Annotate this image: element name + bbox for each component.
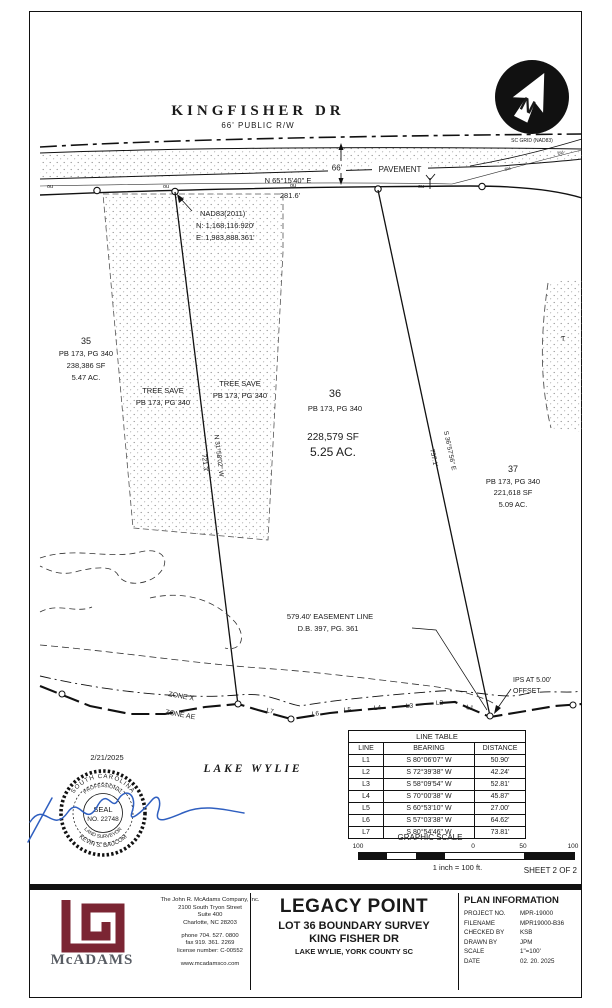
svg-text:PB 173, PG 340: PB 173, PG 340: [213, 391, 267, 400]
easement-note: 579.40' EASEMENT LINE D.B. 397, PG. 361: [287, 612, 487, 710]
seal-center1: SEAL: [93, 805, 112, 814]
contour-lines: [40, 551, 242, 649]
seal-arc-bottom2: LAND SURVEYOR: [83, 826, 124, 840]
utility-line: [40, 183, 452, 186]
easement-line: [40, 645, 493, 703]
svg-text:PB 173, PG 340: PB 173, PG 340: [486, 477, 540, 486]
lot-36-label: 36 PB 173, PG 340 228,579 SF 5.25 AC.: [307, 388, 362, 459]
graphic-scale-title: GRAPHIC SCALE: [350, 833, 510, 842]
table-row: L4S 70°00'38" W45.87': [349, 791, 526, 803]
ips-line2: OFFSET: [513, 688, 541, 695]
ips-line1: IPS AT 5.00': [513, 677, 551, 684]
front-bearing: N 65°15'40" E: [265, 176, 312, 185]
project-location: LAKE WYLIE, YORK COUNTY SC: [251, 947, 457, 956]
divider: [458, 893, 459, 990]
svg-text:36: 36: [329, 388, 341, 400]
svg-text:L2: L2: [436, 700, 444, 707]
scale-bar: [358, 852, 575, 860]
plan-information: PLAN INFORMATION PROJECT NO.MPR-19000 FI…: [464, 895, 580, 967]
svg-text:5.09 AC.: 5.09 AC.: [499, 500, 528, 509]
survey-plat-page: PAVEMENT 66' ou ou ou ou ou ou KINGFISHE…: [0, 0, 612, 1008]
front-distance: 281.6': [280, 191, 301, 200]
rw-width-dim: 66': [332, 164, 343, 173]
east-line-distance: 757.1': [428, 448, 438, 467]
scale-tick: 0: [471, 843, 475, 850]
utility-tag: ou: [504, 165, 512, 172]
lake-label: LAKE WYLIE: [202, 763, 302, 775]
line-table: LINE TABLE LINE BEARING DISTANCE L1S 80°…: [348, 730, 526, 839]
line-table-header: DISTANCE: [475, 743, 526, 755]
pavement-label: PAVEMENT: [379, 165, 422, 174]
tree-save-area-left: [103, 194, 283, 540]
zone-ae-label: ZONE AE: [165, 709, 196, 721]
mcadams-wordmark: McADAMS: [32, 952, 152, 969]
svg-text:LAND SURVEYOR: LAND SURVEYOR: [83, 826, 124, 840]
project-subtitle: LOT 36 BOUNDARY SURVEY: [251, 920, 457, 932]
flood-zone-boundary: [40, 676, 582, 706]
signature: [28, 793, 244, 842]
utility-tag: ou: [163, 184, 169, 190]
nad-line3: E: 1,983,888.361': [196, 233, 255, 242]
table-row: L1S 80°06'07" W50.90': [349, 755, 526, 767]
seal-date: 2/21/2025: [90, 753, 123, 762]
project-title: LEGACY POINT: [251, 896, 457, 918]
plan-info-title: PLAN INFORMATION: [464, 895, 580, 906]
utility-tag: ou: [47, 184, 53, 190]
pavement-band: [40, 148, 582, 179]
scale-tick: 100: [353, 843, 364, 850]
plan-info-row: PROJECT NO.MPR-19000: [464, 909, 580, 919]
svg-text:37: 37: [508, 464, 518, 474]
easement-line2: D.B. 397, PG. 361: [298, 624, 359, 633]
plan-info-row: FILENAMEMPR19000-B36: [464, 919, 580, 929]
mcadams-logo-icon: [58, 896, 128, 954]
table-row: L3S 58°09'54" W52.81': [349, 779, 526, 791]
project-street: KING FISHER DR: [251, 933, 457, 945]
nad-line2: N: 1,168,116.920': [196, 221, 255, 230]
line-table-header: LINE: [349, 743, 384, 755]
svg-text:5.47 AC.: 5.47 AC.: [72, 373, 101, 382]
svg-text:PB 173, PG 340: PB 173, PG 340: [136, 398, 190, 407]
svg-text:PB 173, PG 340: PB 173, PG 340: [308, 404, 362, 413]
scale-tick: 100: [568, 843, 579, 850]
table-row: L6S 57°03'38" W64.62': [349, 815, 526, 827]
plan-info-row: DRAWN BYJPM: [464, 938, 580, 948]
scale-tick: 50: [519, 843, 526, 850]
plan-info-row: SCALE1"=100': [464, 947, 580, 957]
project-title-block: LEGACY POINT LOT 36 BOUNDARY SURVEY KING…: [251, 896, 457, 956]
sheet-number: SHEET 2 OF 2: [503, 866, 577, 875]
street-name: KINGFISHER DR: [171, 103, 344, 119]
svg-text:L5: L5: [344, 706, 352, 714]
svg-text:238,386 SF: 238,386 SF: [67, 361, 106, 370]
svg-text:221,618 SF: 221,618 SF: [494, 488, 533, 497]
svg-text:L4: L4: [374, 704, 382, 712]
easement-line1: 579.40' EASEMENT LINE: [287, 612, 373, 621]
rw-centerline: [40, 134, 582, 147]
line-table-header: BEARING: [384, 743, 475, 755]
seal-center2: NO. 22748: [87, 816, 119, 823]
svg-text:L1: L1: [466, 704, 475, 712]
east-line-bearing: S 36°57'56" E: [442, 430, 458, 472]
tree-save-partial-label: T: [561, 336, 566, 343]
svg-text:5.25 AC.: 5.25 AC.: [310, 445, 356, 459]
title-block: McADAMS The John R. McAdams Company, Inc…: [30, 884, 581, 996]
svg-text:35: 35: [81, 336, 91, 346]
north-caption: SC GRID (NAD83): [511, 138, 553, 144]
svg-text:TREE SAVE: TREE SAVE: [142, 386, 184, 395]
street-rw: 66' PUBLIC R/W: [221, 121, 294, 130]
zone-x-label: ZONE X: [168, 691, 195, 702]
svg-text:L3: L3: [406, 703, 414, 710]
line-table-title: LINE TABLE: [349, 731, 526, 743]
table-row: L5S 60°53'10" W27.00': [349, 803, 526, 815]
svg-text:TREE SAVE: TREE SAVE: [219, 379, 261, 388]
nad-line1: NAD83(2011): [200, 209, 246, 218]
plan-info-row: CHECKED BYKSB: [464, 928, 580, 938]
tree-save-area-right: [542, 278, 582, 432]
table-row: L2S 72°39'38" W42.24': [349, 767, 526, 779]
lot-37-label: 37 PB 173, PG 340 221,618 SF 5.09 AC.: [486, 464, 540, 509]
svg-text:L6: L6: [312, 710, 320, 718]
north-arrow-icon: N: [495, 60, 569, 134]
plan-info-row: DATE02. 20. 2025: [464, 957, 580, 967]
svg-text:228,579 SF: 228,579 SF: [307, 432, 359, 443]
lot-35-label: 35 PB 173, PG 340 238,386 SF 5.47 AC.: [59, 336, 113, 382]
svg-text:PB 173, PG 340: PB 173, PG 340: [59, 349, 113, 358]
